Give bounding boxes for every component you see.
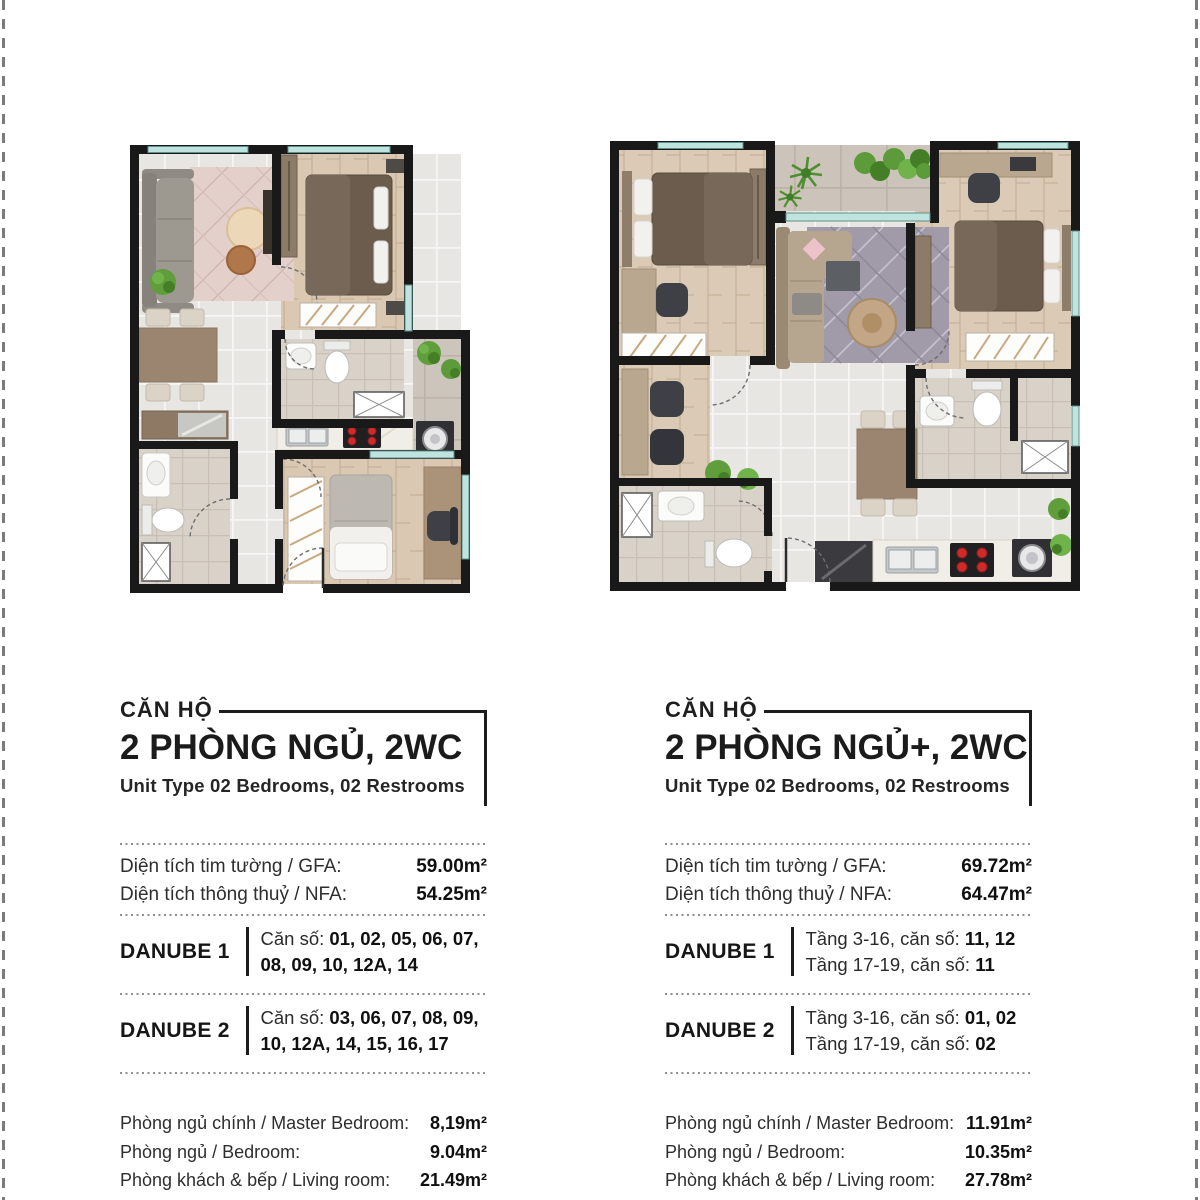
nightstand [386, 159, 404, 173]
coffee-table [227, 208, 269, 250]
vertical-divider [791, 927, 794, 976]
page-cut-line-left [2, 0, 5, 1200]
headboard [622, 171, 632, 267]
desk-chair [650, 429, 684, 465]
toilet [973, 392, 1001, 426]
pillow [634, 221, 652, 257]
header-bracket-rule [219, 710, 487, 806]
page-cut-line-right [1195, 0, 1198, 1200]
area-row-nfa: Diện tích thông thuỷ / NFA: 64.47m² [665, 881, 1032, 909]
desk [622, 369, 648, 475]
tower-row-danube-2: DANUBE 2 Căn số: 03, 06, 07, 08, 09, 10,… [120, 996, 487, 1066]
desk [622, 269, 656, 333]
desk-chair [650, 381, 684, 417]
brochure-page: { "page": { "background": "#ffffff", "ed… [0, 0, 1200, 1200]
pillow [1044, 229, 1060, 263]
area-table: Diện tích tim tường / GFA: 59.00m² Diện … [120, 853, 487, 909]
coffee-table [826, 261, 860, 291]
toilet-tank [705, 541, 714, 567]
tower-line: Tầng 17-19, căn số: 11 [806, 952, 1016, 978]
unit-header: CĂN HỘ 2 PHÒNG NGỦ, 2WC Unit Type 02 Bed… [120, 699, 487, 807]
chair [146, 384, 170, 401]
unit-info-2br-2wc: CĂN HỘ 2 PHÒNG NGỦ, 2WC Unit Type 02 Bed… [120, 699, 487, 1195]
plant [417, 341, 441, 365]
chair [146, 309, 170, 326]
stove [950, 543, 994, 577]
chair [861, 499, 885, 516]
desk-chair [656, 283, 688, 317]
vertical-divider [246, 927, 249, 976]
chair [861, 411, 885, 428]
chair [180, 384, 204, 401]
side-table [227, 246, 255, 274]
plant [1050, 534, 1072, 556]
wardrobe [915, 236, 931, 328]
header-bracket-rule [764, 710, 1032, 806]
room-row-living: Phòng khách & bếp / Living room:21.49m² [120, 1166, 487, 1195]
room-row-master: Phòng ngủ chính / Master Bedroom:11.91m² [665, 1109, 1032, 1138]
tower-line: Tầng 17-19, căn số: 02 [806, 1031, 1017, 1057]
chair [893, 499, 917, 516]
room-area-table: Phòng ngủ chính / Master Bedroom:8,19m² … [120, 1109, 487, 1195]
pillow [335, 543, 387, 571]
toilet [152, 508, 184, 532]
toilet-tank [972, 381, 1002, 390]
laptop [1010, 157, 1036, 171]
floorplan-2br-plus-2wc [610, 140, 1080, 592]
living-room [142, 167, 294, 313]
dining-area [139, 309, 228, 439]
pillow [634, 179, 652, 215]
pillow [1044, 269, 1060, 303]
dotted-divider [665, 1072, 1032, 1075]
desk-chair [968, 173, 1000, 203]
room-row-living: Phòng khách & bếp / Living room:27.78m² [665, 1166, 1032, 1195]
unit-info-2br-plus-2wc: CĂN HỘ 2 PHÒNG NGỦ+, 2WC Unit Type 02 Be… [665, 699, 1032, 1195]
dotted-divider [120, 1072, 487, 1075]
bedroom-2 [283, 459, 461, 581]
tower-row-danube-1: DANUBE 1 Căn số: 01, 02, 05, 06, 07, 08,… [120, 917, 487, 987]
tower-row-danube-2: DANUBE 2 Tầng 3-16, căn số: 01, 02 Tầng … [665, 996, 1032, 1066]
nightstand [386, 301, 404, 315]
pillow [374, 187, 388, 229]
area-table: Diện tích tim tường / GFA: 69.72m² Diện … [665, 853, 1032, 909]
tower-line: Tầng 3-16, căn số: 11, 12 [806, 926, 1016, 952]
area-row-gfa: Diện tích tim tường / GFA: 69.72m² [665, 853, 1032, 881]
toilet-tank [142, 505, 152, 535]
room-row-bedroom: Phòng ngủ / Bedroom:9.04m² [120, 1138, 487, 1167]
headboard [1062, 225, 1071, 311]
toilet-tank [324, 341, 350, 350]
tower-line: Tầng 3-16, căn số: 01, 02 [806, 1005, 1017, 1031]
pillow [374, 241, 388, 283]
throw-blanket [792, 293, 822, 315]
room-area-table: Phòng ngủ chính / Master Bedroom:11.91m²… [665, 1109, 1032, 1195]
plant [150, 269, 176, 295]
area-row-gfa: Diện tích tim tường / GFA: 59.00m² [120, 853, 487, 881]
tv-cabinet [263, 190, 272, 254]
sofa-back [776, 227, 790, 369]
dotted-divider [665, 843, 1032, 846]
plant [441, 359, 461, 379]
room-row-bedroom: Phòng ngủ / Bedroom:10.35m² [665, 1138, 1032, 1167]
dotted-divider [120, 843, 487, 846]
clothes-rack [288, 477, 324, 581]
chair [180, 309, 204, 326]
vertical-divider [791, 1006, 794, 1055]
plant [1048, 498, 1070, 520]
tower-row-danube-1: DANUBE 1 Tầng 3-16, căn số: 11, 12 Tầng … [665, 917, 1032, 987]
unit-header: CĂN HỘ 2 PHÒNG NGỦ+, 2WC Unit Type 02 Be… [665, 699, 1032, 807]
vertical-divider [246, 1006, 249, 1055]
toilet [325, 351, 349, 383]
dining-table [139, 328, 217, 382]
toilet [716, 539, 752, 567]
floorplan-2br-2wc [130, 145, 470, 593]
area-row-nfa: Diện tích thông thuỷ / NFA: 54.25m² [120, 881, 487, 909]
room-row-master: Phòng ngủ chính / Master Bedroom:8,19m² [120, 1109, 487, 1138]
